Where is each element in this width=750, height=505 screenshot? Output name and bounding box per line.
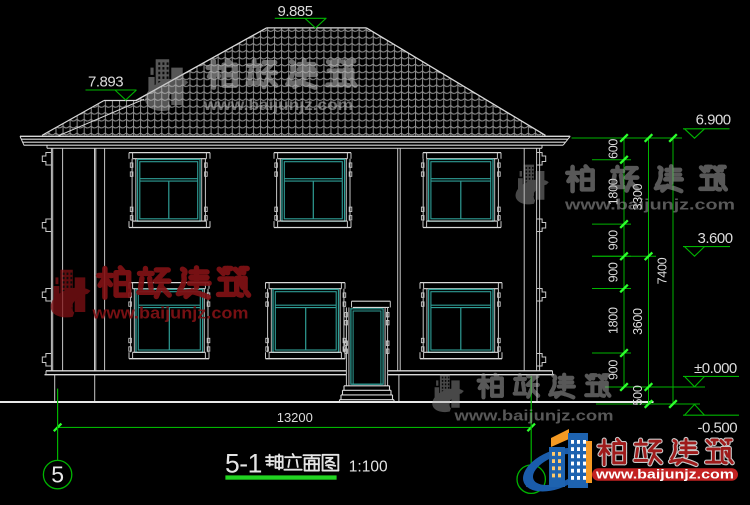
svg-text:-0.500: -0.500 bbox=[698, 420, 738, 437]
svg-text:www.baijunjz.com: www.baijunjz.com bbox=[203, 97, 353, 114]
svg-text:5: 5 bbox=[51, 461, 64, 487]
svg-text:7.893: 7.893 bbox=[88, 74, 123, 91]
svg-text:±0.000: ±0.000 bbox=[694, 360, 737, 377]
svg-text:9.885: 9.885 bbox=[278, 3, 313, 20]
svg-text:7400: 7400 bbox=[655, 257, 669, 284]
svg-text:1800: 1800 bbox=[606, 307, 620, 334]
svg-text:900: 900 bbox=[606, 262, 620, 282]
svg-text:3600: 3600 bbox=[631, 308, 645, 335]
svg-text:600: 600 bbox=[606, 139, 620, 159]
svg-text:www.baijunjz.com: www.baijunjz.com bbox=[595, 467, 734, 481]
svg-text:www.baijunjz.com: www.baijunjz.com bbox=[453, 408, 613, 425]
svg-text:900: 900 bbox=[606, 230, 620, 250]
svg-text:5-1: 5-1 bbox=[225, 449, 262, 479]
svg-text:www.baijunjz.com: www.baijunjz.com bbox=[91, 304, 248, 323]
svg-text:500: 500 bbox=[631, 385, 645, 405]
svg-text:www.baijunjz.com: www.baijunjz.com bbox=[564, 197, 735, 214]
svg-text:3.600: 3.600 bbox=[698, 230, 733, 247]
svg-text:13200: 13200 bbox=[277, 410, 313, 425]
svg-text:6.900: 6.900 bbox=[696, 112, 731, 129]
svg-text:1:100: 1:100 bbox=[349, 459, 388, 476]
